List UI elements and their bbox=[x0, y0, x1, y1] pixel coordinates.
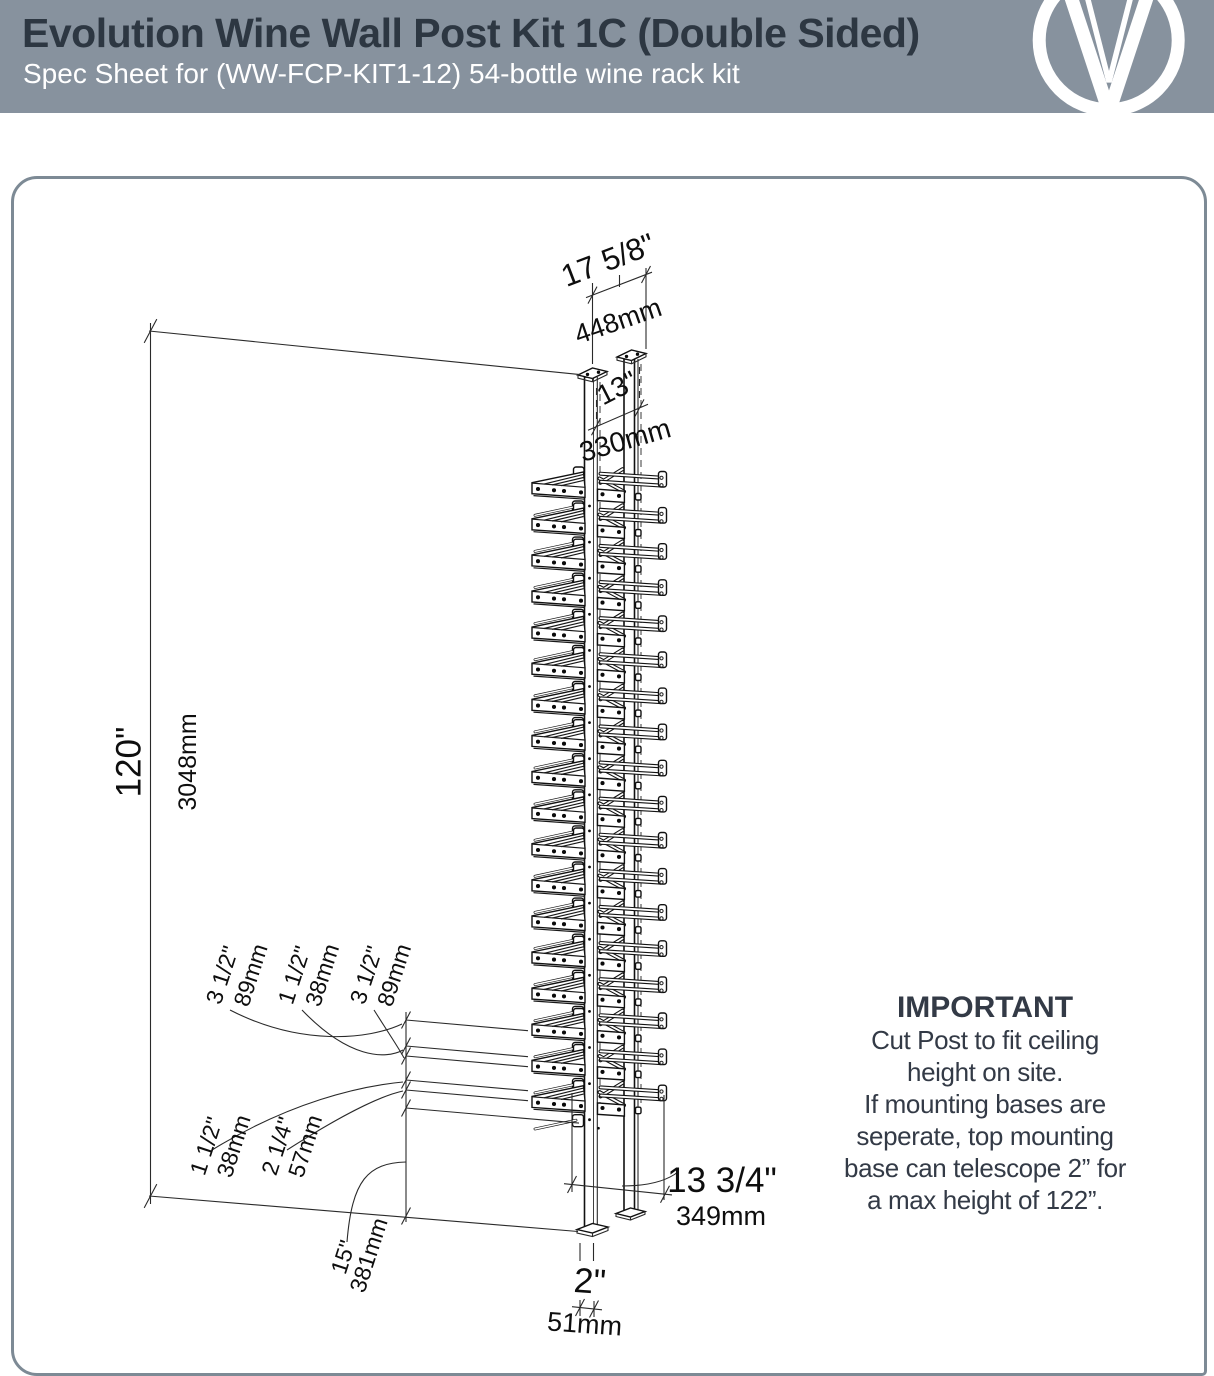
svg-text:3048mm: 3048mm bbox=[174, 713, 202, 810]
svg-text:51mm: 51mm bbox=[546, 1306, 623, 1341]
svg-text:120": 120" bbox=[110, 727, 149, 798]
svg-text:2": 2" bbox=[573, 1261, 608, 1302]
svg-text:448mm: 448mm bbox=[571, 292, 666, 350]
svg-text:13 3/4": 13 3/4" bbox=[667, 1161, 777, 1200]
svg-text:349mm: 349mm bbox=[676, 1201, 766, 1231]
svg-text:17 5/8": 17 5/8" bbox=[556, 226, 659, 294]
